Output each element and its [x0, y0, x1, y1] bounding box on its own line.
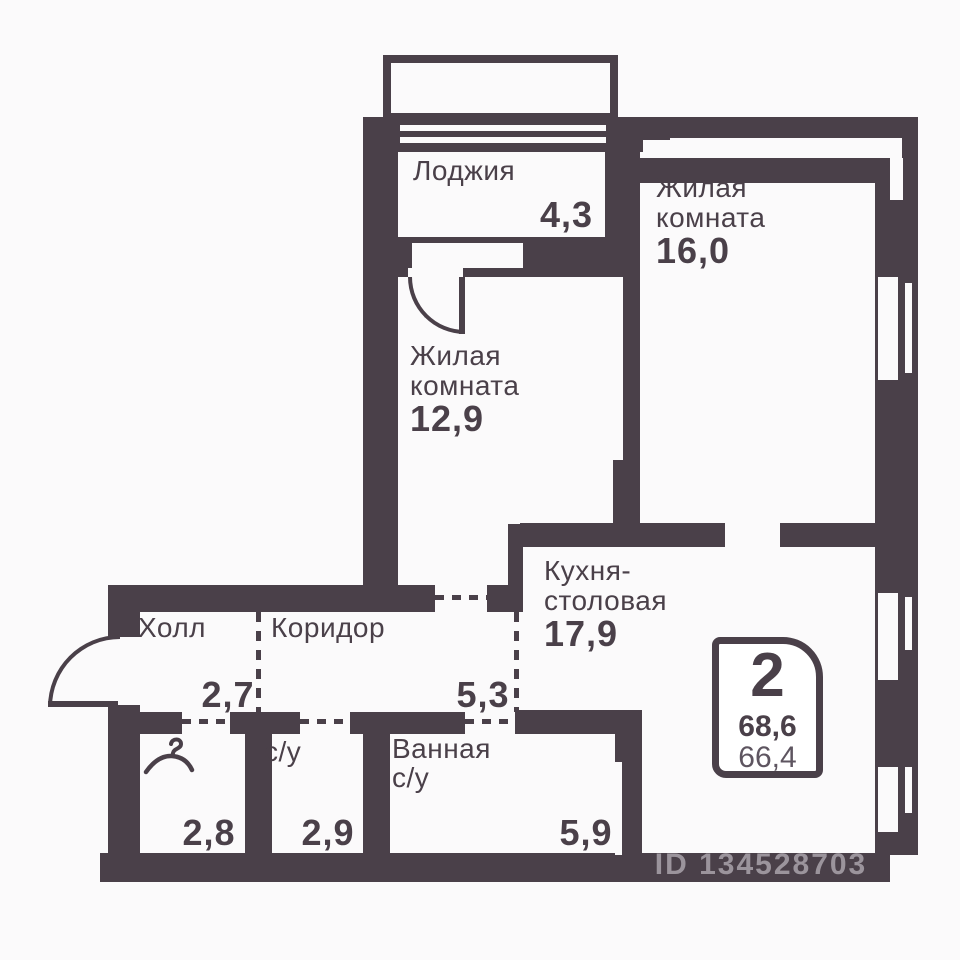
- room-label-bathroom: Ванная: [392, 734, 491, 764]
- door-opening-living-mid: [435, 595, 487, 600]
- floor-plan: Лоджия 4,3 Жилая комната 16,0 Жилая комн…: [0, 0, 960, 960]
- room-label-hall: Холл: [138, 613, 206, 643]
- room-area-wardrobe: 2,8: [164, 812, 254, 854]
- room-area-wc: 2,9: [283, 812, 373, 854]
- door-opening-wc: [300, 719, 350, 724]
- room-label-kitchen: столовая: [544, 586, 667, 616]
- room-area-living-mid: 12,9: [410, 398, 484, 440]
- room-label-living-mid: комната: [410, 371, 519, 401]
- room-label-kitchen: Кухня-: [544, 556, 631, 586]
- wall-segment: [520, 523, 725, 547]
- room-area-kitchen: 17,9: [544, 613, 618, 655]
- facade-gap: [890, 158, 903, 200]
- wall-segment: [623, 183, 640, 547]
- living-area: 66,4: [738, 742, 796, 773]
- room-label-loggia: Лоджия: [413, 156, 515, 186]
- wall-segment: [780, 523, 875, 547]
- facade-gap: [670, 138, 902, 158]
- window-kitchen: [878, 767, 898, 832]
- window-kitchen: [905, 597, 912, 650]
- door-opening-bathroom: [465, 719, 515, 724]
- loggia-glazing-line: [400, 125, 606, 131]
- wall-segment: [108, 585, 435, 612]
- room-label-living-top: Жилая: [656, 173, 747, 203]
- wall-segment: [875, 117, 918, 855]
- loggia-glazing-line: [400, 137, 606, 143]
- balcony-door-leaf: [459, 277, 465, 334]
- hanger-icon: [142, 736, 196, 778]
- balcony-door-opening: [408, 268, 463, 277]
- listing-id-watermark: ID 134528703: [636, 848, 886, 882]
- opening-kitchen-living: [725, 523, 780, 547]
- room-label-corridor: Коридор: [271, 613, 385, 643]
- balcony-outline: [383, 55, 618, 121]
- wall-segment: [508, 524, 523, 590]
- window-kitchen: [878, 593, 898, 680]
- wall-segment: [363, 117, 643, 152]
- window-living: [878, 277, 898, 380]
- room-area-living-top: 16,0: [656, 230, 730, 272]
- apartment-summary-badge: 2 68,6 66,4: [712, 637, 823, 778]
- room-area-hall: 2,7: [183, 674, 273, 716]
- window-loggia: [412, 243, 523, 268]
- room-label-living-mid: Жилая: [410, 341, 501, 371]
- window-living: [905, 283, 912, 373]
- room-label-living-top: комната: [656, 203, 765, 233]
- room-label-wc: с/у: [264, 737, 301, 767]
- wall-segment: [108, 585, 140, 637]
- window-kitchen: [905, 767, 912, 813]
- room-area-bathroom: 5,9: [541, 812, 631, 854]
- entrance-door-leaf: [48, 701, 118, 707]
- entrance-door-arc: [48, 635, 120, 707]
- total-area: 68,6: [738, 711, 796, 742]
- wall-segment: [363, 117, 398, 612]
- balcony-door-arc: [408, 277, 465, 334]
- door-opening-wardrobe: [182, 719, 230, 724]
- rooms-count: 2: [750, 646, 784, 706]
- wall-segment: [487, 585, 523, 612]
- room-label-bathroom: с/у: [392, 763, 429, 793]
- room-area-corridor: 5,3: [438, 674, 528, 716]
- wall-segment: [108, 712, 182, 734]
- room-area-loggia: 4,3: [493, 194, 593, 236]
